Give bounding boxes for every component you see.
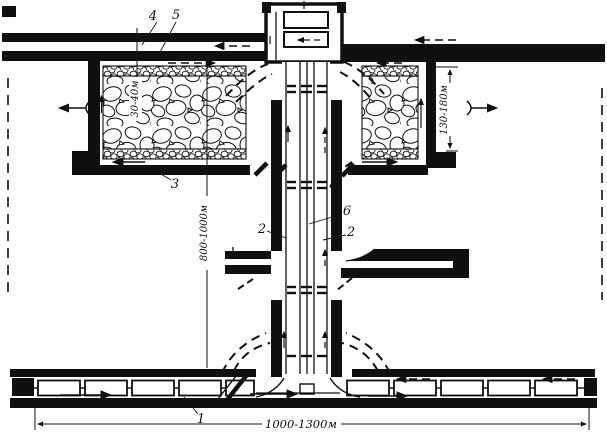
callout-train: 1 bbox=[197, 412, 205, 427]
diagram-page: 30-40м 130-180м 800-1000м 1000-1300м 4 bbox=[0, 0, 607, 433]
callout-stope-drift: 3 bbox=[171, 177, 179, 192]
callout-vent-drift: 4 bbox=[148, 9, 157, 24]
middle-crosscut bbox=[225, 247, 469, 278]
vent-symbol-right bbox=[467, 101, 496, 115]
left-stope bbox=[103, 66, 246, 159]
shaft-block bbox=[262, 1, 346, 62]
callout-incline-left: 2 bbox=[257, 222, 266, 237]
dim-panel-width-label: 1000-1300м bbox=[265, 417, 337, 431]
central-inclines bbox=[271, 62, 342, 377]
dim-panel-length-label: 800-1000м bbox=[199, 205, 210, 261]
dim-strip-width-label: 30-40м bbox=[130, 80, 141, 117]
callout-incline-right: 2 bbox=[346, 225, 355, 240]
dim-stope-length-label: 130-180м bbox=[439, 85, 450, 135]
callout-conveyor: 6 bbox=[343, 204, 351, 219]
callout-haulage-drift-top: 5 bbox=[172, 8, 180, 23]
vent-symbol-left bbox=[60, 101, 90, 115]
mining-scheme-diagram: 30-40м 130-180м 800-1000м 1000-1300м 4 bbox=[0, 0, 607, 433]
